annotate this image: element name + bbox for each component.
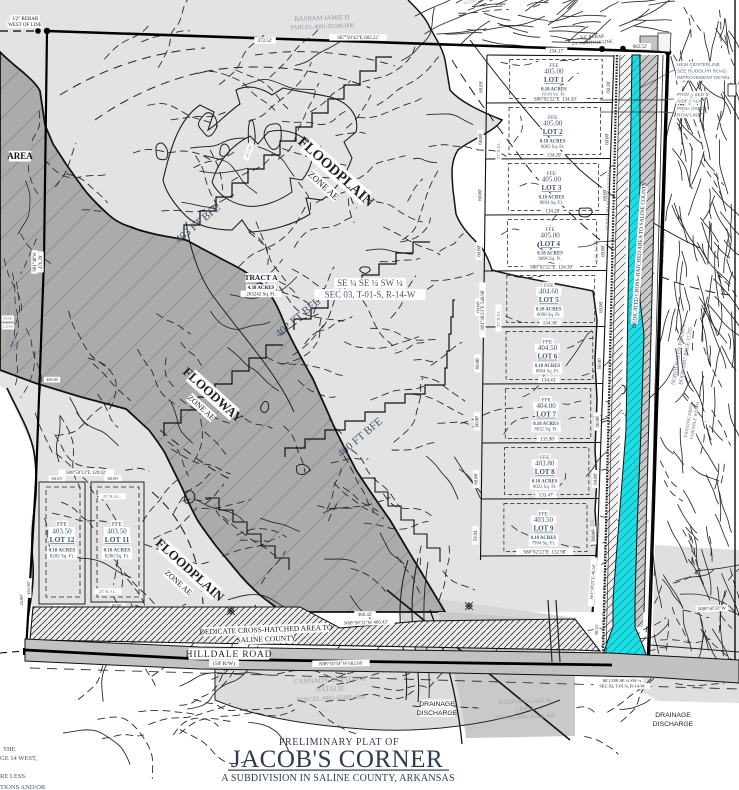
svg-text:682.52': 682.52' [633,45,648,50]
svg-text:0.18 ACRES: 0.18 ACRES [535,364,561,369]
svg-text:60.00': 60.00' [594,473,599,485]
svg-text:8282 Sq. Ft.: 8282 Sq. Ft. [50,555,74,560]
svg-text:LINDA: LINDA [516,706,536,713]
svg-text:S01°38'23"E 540.98': S01°38'23"E 540.98' [481,290,486,330]
svg-text:LOT 1: LOT 1 [544,76,564,84]
svg-text:133.47': 133.47' [539,494,554,499]
svg-text:ROW LINE: ROW LINE [677,113,701,119]
svg-text:SE ¼ SE ¼ SW ¼: SE ¼ SE ¼ SW ¼ [337,278,403,288]
svg-text:DRAINAGE: DRAINAGE [419,701,455,708]
svg-text:60.00': 60.00' [478,245,483,257]
svg-text:60.00': 60.00' [108,476,119,481]
svg-text:7984 Sq. Ft.: 7984 Sq. Ft. [532,542,555,547]
svg-text:43.00': 43.00' [19,594,24,605]
svg-text:60.00': 60.00' [475,416,480,428]
svg-text:LOT 4: LOT 4 [540,240,560,248]
svg-text:8032 Sq. Ft.: 8032 Sq. Ft. [534,428,557,433]
svg-text:LOT 2: LOT 2 [543,128,563,136]
svg-text:PARCEL #001-05595-000: PARCEL #001-05595-000 [14,298,19,352]
svg-text:LOT 12: LOT 12 [49,535,74,544]
svg-text:SEC 03, T-01-S, R-14-W: SEC 03, T-01-S, R-14-W [325,289,416,299]
svg-text:WEST OF LINE: WEST OF LINE [8,23,42,28]
svg-text:25' B.S.L.: 25' B.S.L. [99,589,117,594]
svg-text:PIPE: PIPE [3,316,13,321]
svg-text:60.00': 60.00' [598,358,603,370]
svg-text:60.30': 60.30' [607,81,612,93]
svg-text:59.94': 59.94' [474,530,479,542]
svg-text:404.00: 404.00 [536,402,556,410]
svg-text:60.00': 60.00' [476,358,481,370]
svg-text:(50' R/W): (50' R/W) [213,660,235,667]
svg-text:60.00': 60.00' [475,473,480,485]
svg-text:JACOB'S CORNER: JACOB'S CORNER [231,746,443,773]
svg-text:LOT 3: LOT 3 [541,184,561,192]
svg-text:476.39': 476.39' [39,255,44,269]
svg-text:25' B.S.L.: 25' B.S.L. [103,494,121,499]
svg-text:0.18 ACRES: 0.18 ACRES [541,87,567,92]
svg-text:405.00: 405.00 [542,176,562,184]
svg-text:NEW CENTERLINE: NEW CENTERLINE [677,62,720,68]
svg-text:0.18 ACRES: 0.18 ACRES [531,536,557,541]
svg-text:1/2" REBAR: 1/2" REBAR [12,17,39,22]
svg-text:LOT 9: LOT 9 [533,525,553,533]
svg-text:GE 14 WEST,: GE 14 WEST, [0,755,38,762]
svg-text:8023 Sq. Ft.: 8023 Sq. Ft. [533,485,556,490]
svg-text:S01°40'W: S01°40'W [33,252,38,272]
svg-text:8096 Sq. Ft.: 8096 Sq. Ft. [538,257,561,262]
svg-text:404.60: 404.60 [539,288,559,296]
svg-text:TRACT A: TRACT A [245,273,279,282]
svg-text:404.50: 404.50 [538,344,558,352]
svg-text:0.18 ACRES: 0.18 ACRES [532,479,558,484]
svg-text:60.03': 60.03' [52,476,63,481]
svg-text:S88°50'33"E 120.02': S88°50'33"E 120.02' [66,471,106,476]
svg-text:472.52': 472.52' [258,39,273,44]
svg-text:N88°50'54"W 682.66': N88°50'54"W 682.66' [319,662,363,668]
svg-text:134.36': 134.36' [543,322,558,327]
svg-text:DRAINAGE: DRAINAGE [655,712,691,719]
svg-text:25' B.S.L.: 25' B.S.L. [496,141,501,159]
svg-text:S88°02'22"E 134.30': S88°02'22"E 134.30' [530,266,573,271]
svg-text:403.50: 403.50 [534,516,554,524]
svg-text:DISCHARGE: DISCHARGE [417,710,458,717]
svg-text:60.69': 60.69' [480,81,485,93]
svg-text:8084 Sq. Ft.: 8084 Sq. Ft. [536,370,559,375]
svg-text:60.00': 60.00' [602,245,607,257]
svg-text:N88°50'33"W: N88°50'33"W [698,606,727,612]
svg-text:465.90': 465.90' [26,581,31,594]
svg-text:405.00: 405.00 [540,232,560,240]
svg-text:405.00: 405.00 [544,68,564,76]
svg-text:SEE RUDOLPH ROAD: SEE RUDOLPH ROAD [677,69,727,75]
svg-text:134.17': 134.17' [549,50,564,55]
svg-text:60.00': 60.00' [479,133,484,145]
svg-text:U.E. A.D.E.: U.E. A.D.E. [595,238,600,261]
svg-text:U.E. & D.E.: U.E. & D.E. [591,518,596,542]
svg-text:IMPROVEMENT DETAIL: IMPROVEMENT DETAIL [677,75,731,81]
svg-text:0.18 ACRES: 0.18 ACRES [104,548,131,553]
svg-text:400.00: 400.00 [46,377,58,382]
svg-text:LOT 6: LOT 6 [537,353,557,361]
svg-text:134.28': 134.28' [545,210,560,215]
svg-text:403.80: 403.80 [535,460,555,468]
svg-text:466.42': 466.42' [358,613,373,618]
svg-text:0.18 ACRES: 0.18 ACRES [537,251,563,256]
svg-text:4.38 ACRES: 4.38 ACRES [248,286,275,291]
svg-text:LOT 5: LOT 5 [539,296,559,304]
svg-text:S88°02'22"E 134.20': S88°02'22"E 134.20' [534,98,577,103]
svg-text:A SUBDIVISION IN SALINE COUNTY: A SUBDIVISION IN SALINE COUNTY, ARKANSAS [221,773,454,784]
svg-text:0.18 ACRES: 0.18 ACRES [533,422,559,427]
svg-text:8094 Sq. Ft.: 8094 Sq. Ft. [540,201,563,206]
svg-text:263242 Sq. Ft.: 263242 Sq. Ft. [246,293,275,298]
svg-text:60.00': 60.00' [478,189,483,201]
svg-text:8083 Sq. Ft.: 8083 Sq. Ft. [541,145,564,150]
svg-text:LINE: LINE [3,324,13,329]
svg-text:0.18 ACRES: 0.18 ACRES [540,139,566,144]
svg-text:LOT 7: LOT 7 [536,411,556,419]
svg-text:0.18 ACRES: 0.18 ACRES [49,548,76,553]
svg-text:HILLDALE ROAD: HILLDALE ROAD [186,650,273,660]
svg-text:8090 Sq. Ft.: 8090 Sq. Ft. [537,313,560,318]
svg-text:NATALIE: NATALIE [316,684,345,694]
svg-text:VARIES: VARIES [597,521,602,538]
svg-text:S88°02'22"E 132.98': S88°02'22"E 132.98' [523,551,566,556]
svg-text:LOT 11: LOT 11 [105,535,130,544]
svg-text:60.00': 60.00' [605,133,610,145]
svg-text:THE: THE [3,746,16,753]
svg-text:134.43': 134.43' [541,379,556,384]
svg-text:TIONS AND/OR: TIONS AND/OR [0,784,46,790]
svg-text:133.98': 133.98' [540,438,555,443]
svg-text:S87°50'42"E 682.52': S87°50'42"E 682.52' [337,36,379,41]
svg-text:8280 Sq. Ft.: 8280 Sq. Ft. [105,555,129,560]
svg-text:0.18 ACRES: 0.18 ACRES [536,307,562,312]
svg-text:25' B.S.L.: 25' B.S.L. [496,309,501,327]
svg-text:LOT 8: LOT 8 [535,468,555,476]
svg-text:RE LESS.: RE LESS. [0,773,27,780]
svg-text:SE COR SE ¼ SW ¼: SE COR SE ¼ SW ¼ [603,678,642,683]
svg-text:0.18 ACRES: 0.18 ACRES [539,195,565,200]
svg-text:AREA: AREA [7,151,33,161]
svg-text:134.20': 134.20' [547,154,562,159]
svg-text:48.50': 48.50' [594,624,600,635]
svg-text:DISCHARGE: DISCHARGE [653,721,694,728]
svg-text:60.00': 60.00' [600,301,605,313]
svg-text:60.00': 60.00' [596,416,601,428]
svg-text:405.00: 405.00 [543,120,563,128]
